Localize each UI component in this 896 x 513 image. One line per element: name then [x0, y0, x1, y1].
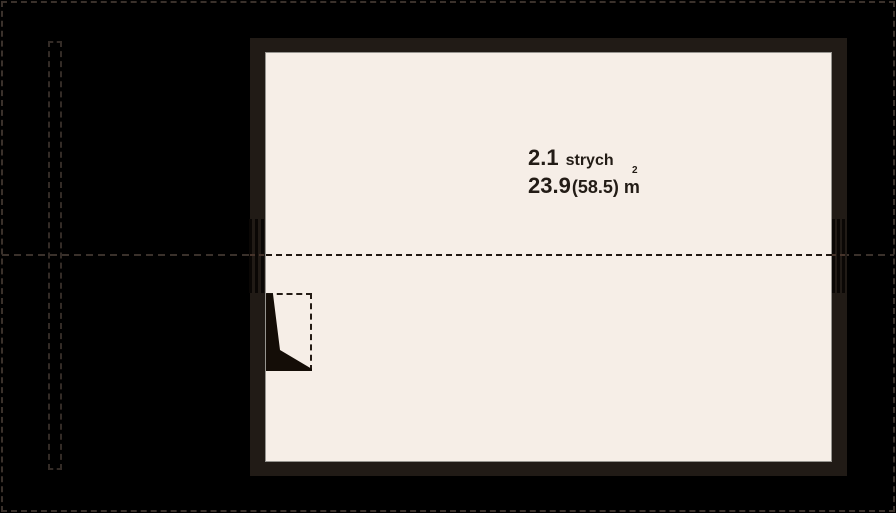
window-stripe — [255, 219, 258, 293]
shaft-dashed-outline — [48, 41, 62, 470]
room-area-exponent: 2 — [632, 166, 638, 176]
gable-window-left-icon — [249, 219, 265, 293]
gable-window-right-icon — [832, 219, 846, 293]
ridge-dash-line-interior — [266, 254, 832, 256]
ridge-dash-line-wall-right — [831, 254, 847, 256]
window-stripe — [261, 219, 264, 293]
room-area-value: 23.9 — [528, 175, 571, 197]
window-stripe — [842, 219, 845, 293]
room-area-secondary: (58.5) — [572, 178, 619, 196]
ridge-dash-line-wall-left — [250, 254, 266, 256]
room-walls — [250, 38, 847, 476]
window-stripe — [837, 219, 840, 293]
floor-plan-canvas: 2.1 strych 23.9 (58.5) m 2 — [0, 0, 896, 513]
window-stripe — [249, 219, 252, 293]
stair-slope-shape — [265, 292, 312, 372]
room-floor — [265, 52, 832, 462]
room-area-unit: m — [624, 178, 640, 196]
room-number: 2.1 — [528, 147, 559, 169]
room-name: strych — [566, 153, 614, 169]
window-stripe — [832, 219, 835, 293]
room-label-line2: 23.9 (58.5) m — [528, 175, 640, 197]
room-label-line1: 2.1 strych — [528, 147, 614, 169]
